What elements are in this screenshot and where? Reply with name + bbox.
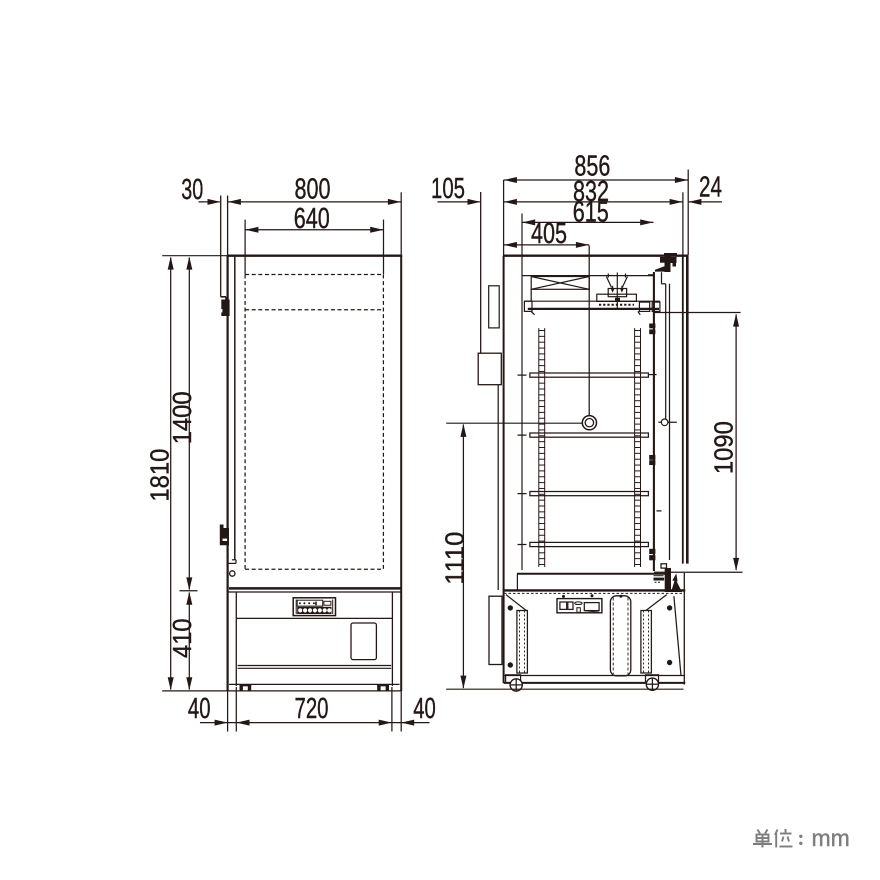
- svg-text:1090: 1090: [711, 421, 739, 474]
- svg-text:mm: mm: [812, 825, 850, 851]
- svg-text:30: 30: [181, 174, 203, 206]
- svg-text:405: 405: [531, 218, 567, 250]
- svg-text:1810: 1810: [147, 449, 175, 502]
- svg-text:40: 40: [188, 693, 211, 725]
- svg-text:640: 640: [294, 203, 330, 235]
- svg-text:40: 40: [413, 693, 436, 725]
- svg-text:720: 720: [295, 693, 329, 725]
- svg-text:410: 410: [169, 618, 197, 658]
- svg-text:1110: 1110: [441, 532, 469, 585]
- svg-text:615: 615: [573, 197, 609, 229]
- svg-text:105: 105: [431, 173, 465, 205]
- svg-text:1400: 1400: [169, 391, 197, 444]
- svg-text:24: 24: [699, 172, 722, 204]
- svg-text:800: 800: [295, 173, 331, 205]
